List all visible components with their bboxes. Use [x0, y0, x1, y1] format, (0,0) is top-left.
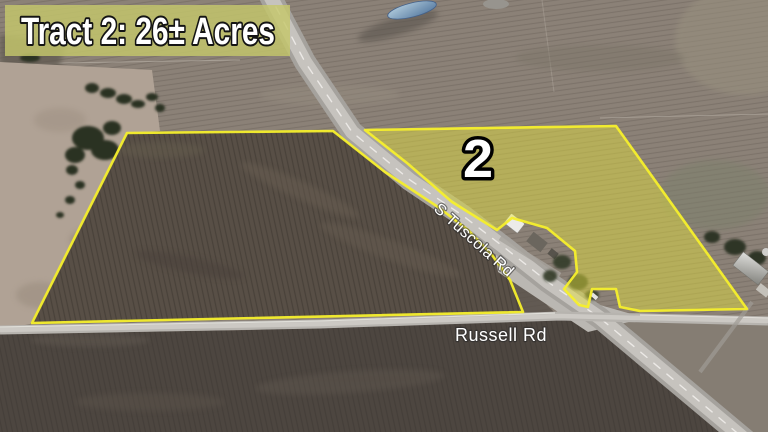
tract-2-marker: 2 [463, 129, 493, 189]
aerial-photo: Tract 2: 26± Acres 2 S Tuscola Rd Russel… [0, 0, 768, 432]
aerial-scene: Tract 2: 26± Acres 2 S Tuscola Rd Russel… [0, 0, 768, 432]
banner-title: Tract 2: 26± Acres [21, 11, 275, 53]
title-banner: Tract 2: 26± Acres [5, 5, 290, 56]
russell-rd-label: Russell Rd [455, 325, 547, 345]
